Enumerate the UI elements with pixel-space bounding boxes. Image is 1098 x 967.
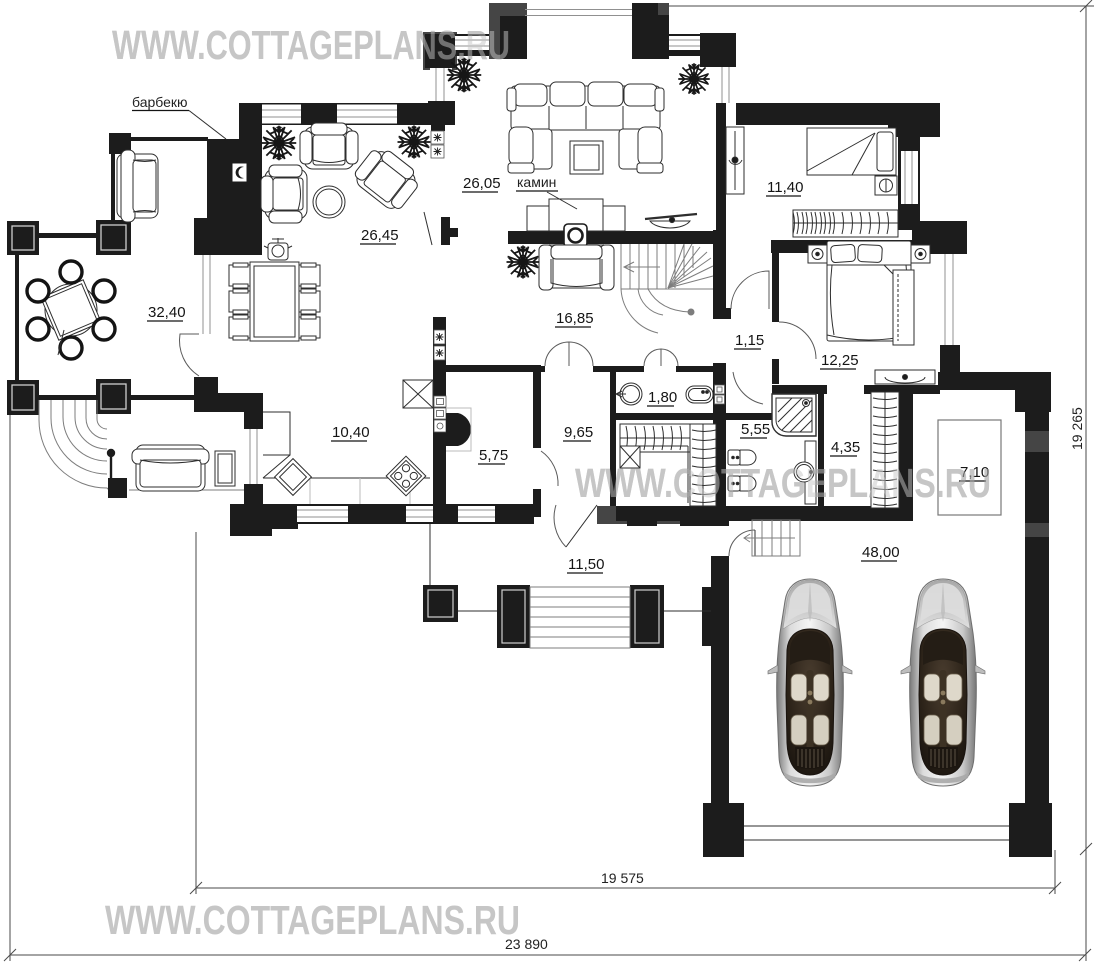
svg-text:16,85: 16,85 xyxy=(556,310,594,327)
svg-text:19 575: 19 575 xyxy=(601,870,644,886)
svg-text:камин: камин xyxy=(517,174,556,190)
svg-text:26,45: 26,45 xyxy=(361,227,399,244)
svg-text:WWW.COTTAGEPLANS.RU: WWW.COTTAGEPLANS.RU xyxy=(105,897,520,943)
svg-text:11,40: 11,40 xyxy=(767,179,803,196)
svg-text:19 265: 19 265 xyxy=(1069,407,1085,450)
svg-text:11,50: 11,50 xyxy=(568,556,604,573)
svg-text:1,15: 1,15 xyxy=(735,332,764,349)
svg-text:26,05: 26,05 xyxy=(463,175,501,192)
svg-text:5,75: 5,75 xyxy=(479,447,508,464)
svg-text:5,55: 5,55 xyxy=(741,421,770,438)
svg-text:9,65: 9,65 xyxy=(564,424,593,441)
svg-text:барбекю: барбекю xyxy=(132,94,188,110)
svg-text:48,00: 48,00 xyxy=(862,544,900,561)
svg-text:12,25: 12,25 xyxy=(821,352,859,369)
svg-text:4,35: 4,35 xyxy=(831,439,860,456)
svg-text:23 890: 23 890 xyxy=(505,936,548,952)
svg-text:1,80: 1,80 xyxy=(648,389,677,406)
svg-text:10,40: 10,40 xyxy=(332,424,370,441)
svg-text:32,40: 32,40 xyxy=(148,304,186,321)
svg-text:WWW.COTTAGEPLANS.RU: WWW.COTTAGEPLANS.RU xyxy=(112,22,510,68)
svg-text:WWW.COTTAGEPLANS.RU: WWW.COTTAGEPLANS.RU xyxy=(575,460,991,506)
